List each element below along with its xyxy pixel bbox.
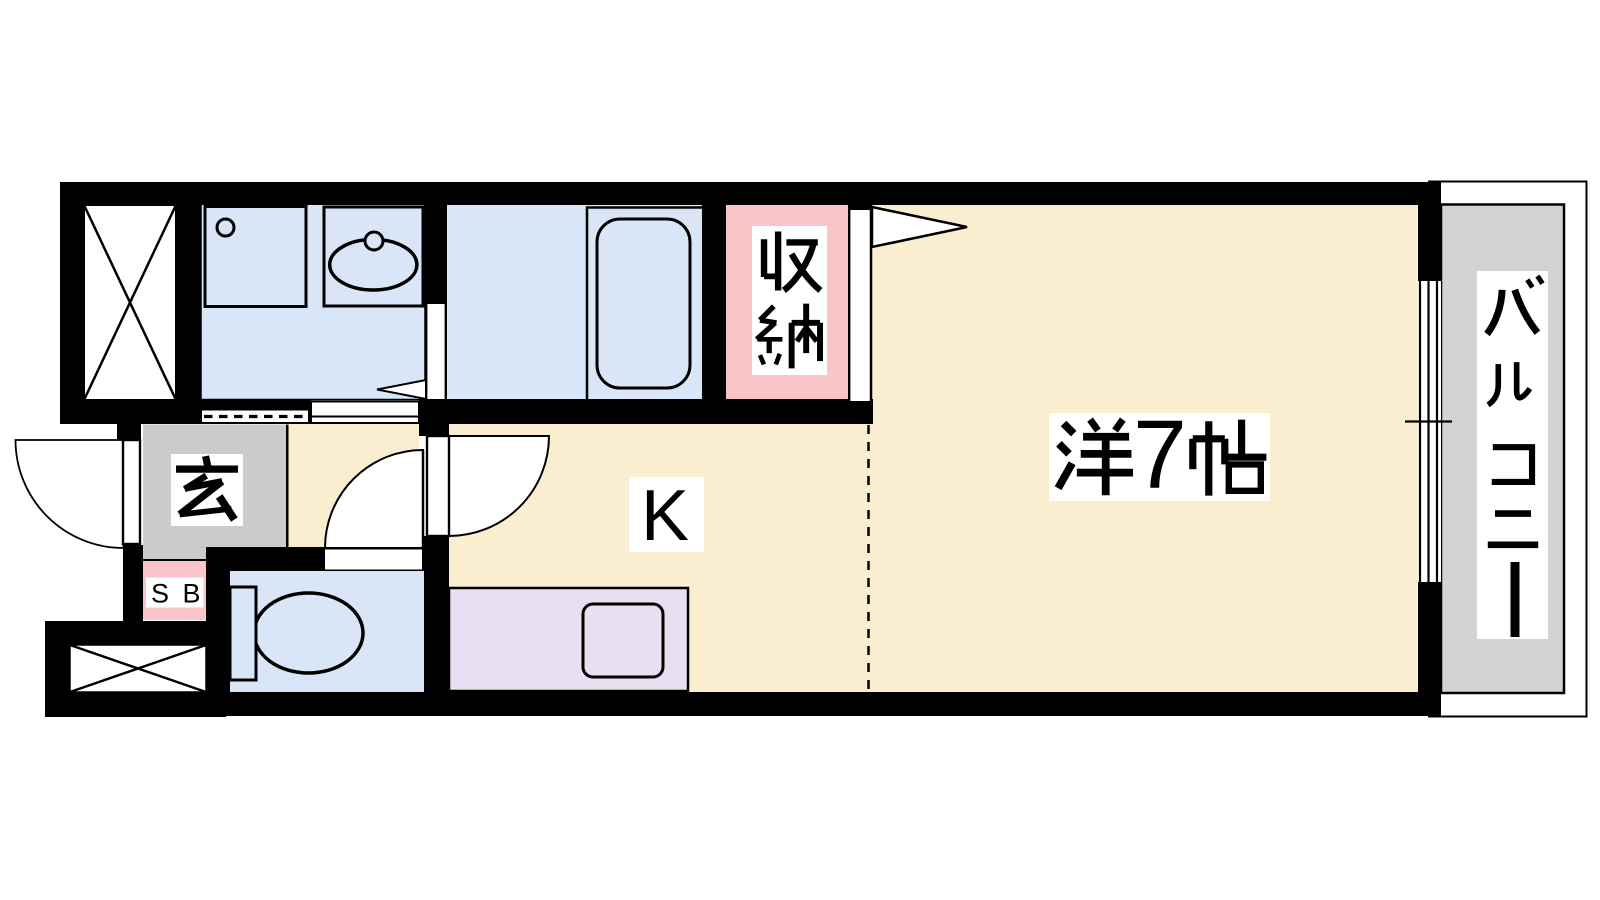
- svg-text:S B: S B: [151, 579, 204, 609]
- svg-text:7: 7: [1133, 400, 1187, 509]
- svg-text:K: K: [641, 476, 689, 556]
